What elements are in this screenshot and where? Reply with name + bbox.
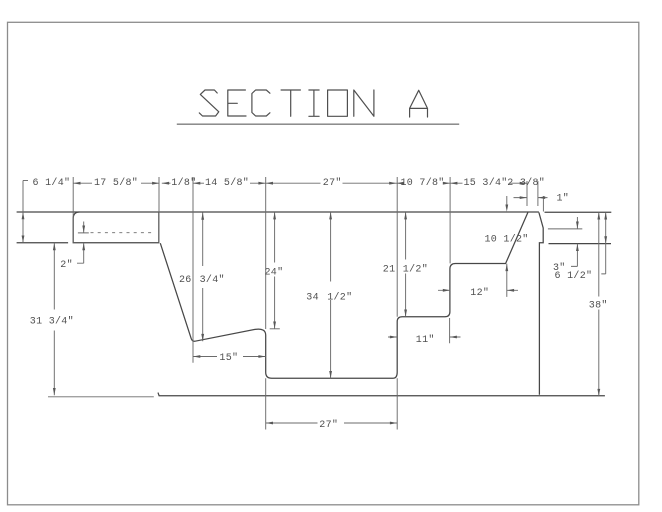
svg-text:38": 38" [589, 300, 608, 312]
svg-text:17 5/8": 17 5/8" [94, 177, 138, 189]
svg-text:1/2": 1/2" [403, 264, 428, 276]
svg-text:11": 11" [416, 334, 435, 346]
svg-text:3/4": 3/4" [200, 274, 225, 286]
svg-text:12": 12" [470, 287, 489, 299]
svg-text:27": 27" [319, 419, 338, 431]
svg-text:15": 15" [219, 352, 238, 364]
svg-text:1": 1" [557, 192, 570, 204]
svg-text:10 1/2": 10 1/2" [485, 233, 529, 245]
svg-text:15 3/4": 15 3/4" [464, 177, 508, 189]
svg-text:2 3/8": 2 3/8" [507, 177, 545, 189]
svg-text:2": 2" [60, 259, 73, 271]
svg-text:6 1/2": 6 1/2" [555, 270, 593, 282]
svg-text:34: 34 [306, 293, 319, 304]
svg-text:1/8": 1/8" [171, 177, 196, 189]
svg-text:27": 27" [323, 177, 342, 189]
svg-text:31 3/4": 31 3/4" [30, 316, 74, 328]
svg-text:24": 24" [265, 267, 284, 279]
svg-text:21: 21 [383, 265, 396, 276]
svg-text:14 5/8": 14 5/8" [205, 177, 249, 189]
svg-text:26: 26 [179, 275, 192, 286]
svg-text:1/2": 1/2" [327, 292, 352, 304]
svg-text:10 7/8": 10 7/8" [401, 177, 445, 189]
svg-text:6 1/4": 6 1/4" [33, 177, 71, 189]
